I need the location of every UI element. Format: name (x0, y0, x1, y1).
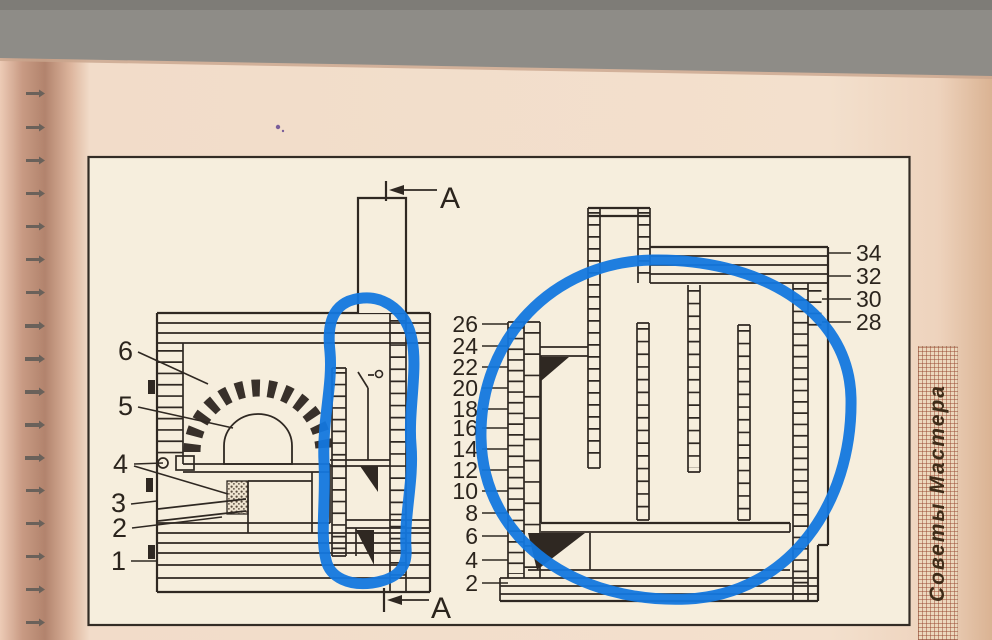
course-label-6: 6 (465, 523, 478, 549)
part-label-6: 6 (118, 336, 133, 366)
grate-block (227, 481, 248, 514)
scanned-page: А А 6 5 4 3 2 1 26 24 22 20 18 16 14 12 … (0, 0, 992, 640)
part-label-5: 5 (118, 391, 133, 421)
page-canvas: А А 6 5 4 3 2 1 26 24 22 20 18 16 14 12 … (0, 0, 992, 640)
course-label-2: 2 (465, 570, 478, 596)
section-label-top: А (440, 182, 460, 215)
section-label-bottom: А (431, 592, 451, 625)
course-label-28: 28 (856, 309, 882, 335)
side-banner-title: Советы Мастера (918, 346, 958, 640)
part-label-1: 1 (111, 546, 126, 576)
ink-speck (276, 125, 280, 129)
side-banner: Советы Мастера (918, 346, 958, 640)
part-label-4: 4 (113, 449, 128, 479)
part-label-2: 2 (112, 513, 127, 543)
